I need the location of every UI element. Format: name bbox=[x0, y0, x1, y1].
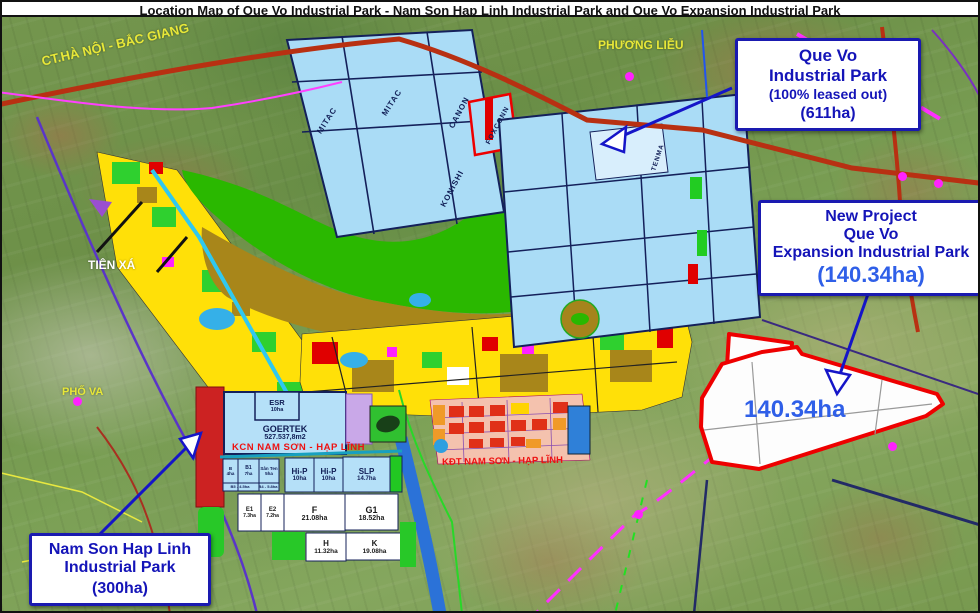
point-marker bbox=[634, 510, 643, 519]
callout-line: Nam Son Hap Linh bbox=[36, 541, 204, 559]
parcel-hip-1: Hi-P 10ha bbox=[285, 462, 314, 488]
parcel-goertek: GOERTEK 527.537,8m2 bbox=[228, 420, 342, 446]
callout-line: Industrial Park bbox=[742, 66, 914, 86]
callout-new-project-expansion: New Project Que Vo Expansion Industrial … bbox=[758, 200, 980, 296]
title-bar: Location Map of Que Vo Industrial Park -… bbox=[2, 2, 978, 17]
parcel-k: K 19.08ha bbox=[346, 536, 403, 558]
parcel-h: H 11.32ha bbox=[306, 536, 346, 558]
parcel-f: F 21.08ha bbox=[284, 501, 345, 527]
callout-line: Que Vo bbox=[765, 226, 977, 244]
location-map-figure: CT.HÀ NỘI - BẮC GIANG PHƯƠNG LIỄU TIÊN X… bbox=[0, 0, 980, 613]
map-canvas: CT.HÀ NỘI - BẮC GIANG PHƯƠNG LIỄU TIÊN X… bbox=[2, 2, 978, 611]
label-phuong-lieu: PHƯƠNG LIỄU bbox=[598, 38, 684, 52]
parcel-san-ten: Sân Ten 5ha bbox=[259, 460, 279, 482]
point-marker bbox=[888, 442, 897, 451]
point-marker bbox=[898, 172, 907, 181]
parcel-note-2: B4 - 5.8ha bbox=[257, 483, 279, 491]
callout-area-value: (300ha) bbox=[36, 580, 204, 598]
point-marker bbox=[934, 179, 943, 188]
callout-line: New Project bbox=[765, 208, 977, 226]
point-marker bbox=[73, 397, 82, 406]
parcel-hip-2: Hi-P 10ha bbox=[314, 462, 343, 488]
callout-line: Que Vo bbox=[742, 46, 914, 66]
parcel-e2: E2 7.2ha bbox=[261, 499, 284, 527]
label-kdt-nam-son: KĐT NAM SƠN - HẠP LĨNH bbox=[442, 455, 563, 468]
label-area-140ha: 140.34ha bbox=[744, 396, 845, 424]
point-marker bbox=[625, 72, 634, 81]
callout-area-value: (611ha) bbox=[742, 105, 914, 123]
callout-line: Industrial Park bbox=[36, 559, 204, 577]
callout-nam-son-hap-linh: Nam Son Hap Linh Industrial Park (300ha) bbox=[29, 533, 211, 606]
callout-line: (100% leased out) bbox=[742, 86, 914, 102]
callout-line: Expansion Industrial Park bbox=[765, 244, 977, 262]
parcel-note-1: B5 - 4.5ha bbox=[223, 483, 257, 491]
parcel-slp: SLP 14.7ha bbox=[343, 462, 390, 488]
parcel-e1: E1 7.3ha bbox=[238, 499, 261, 527]
parcel-b1: B1 7ha bbox=[238, 461, 259, 481]
label-pho-va: PHỐ VA bbox=[62, 386, 103, 398]
callout-area-value: (140.34ha) bbox=[765, 262, 977, 288]
parcel-esr: ESR 10ha bbox=[255, 393, 299, 419]
label-tien-xa: TIÊN XÁ bbox=[88, 258, 135, 272]
parcel-g1: G1 18.52ha bbox=[345, 501, 398, 527]
callout-que-vo-industrial-park: Que Vo Industrial Park (100% leased out)… bbox=[735, 38, 921, 131]
page-title: Location Map of Que Vo Industrial Park -… bbox=[140, 3, 841, 17]
parcel-b: B 4ha bbox=[223, 461, 238, 481]
